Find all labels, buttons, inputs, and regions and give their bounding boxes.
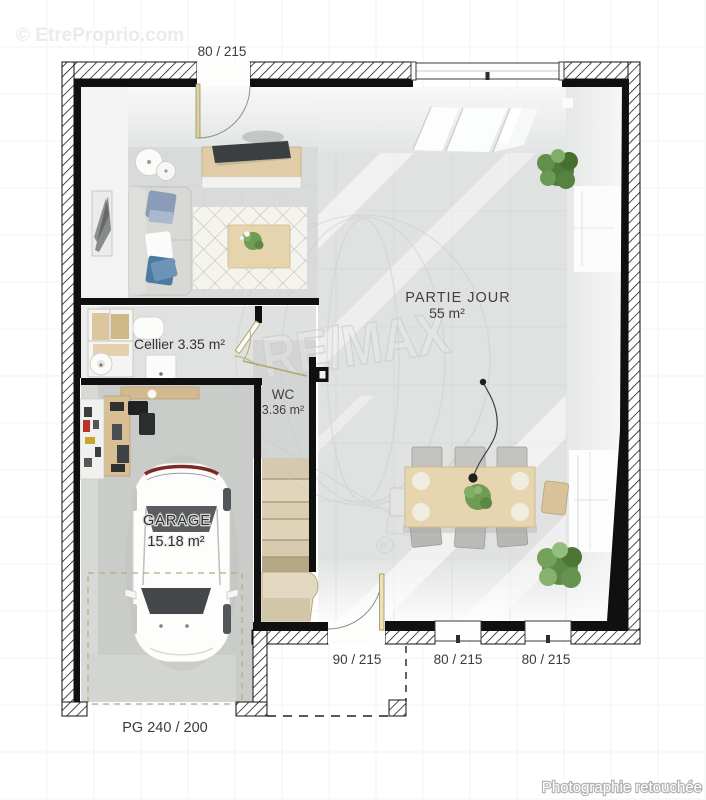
svg-text:80 / 215: 80 / 215 [434,652,483,667]
svg-text:15.18 m²: 15.18 m² [147,534,204,550]
svg-text:R: R [380,540,388,552]
svg-text:80 / 215: 80 / 215 [522,652,571,667]
svg-text:WC: WC [272,387,295,402]
svg-text:Photographie retouchée: Photographie retouchée [542,779,702,796]
svg-text:90 / 215: 90 / 215 [333,652,382,667]
svg-text:80 / 215: 80 / 215 [198,44,247,59]
svg-text:© EtreProprio.com: © EtreProprio.com [16,25,184,46]
svg-text:GARAGE: GARAGE [143,513,211,529]
svg-text:Cellier 3.35 m²: Cellier 3.35 m² [134,336,225,352]
svg-text:3.36 m²: 3.36 m² [262,403,304,417]
svg-text:PG 240 / 200: PG 240 / 200 [122,720,207,736]
svg-text:55 m²: 55 m² [429,305,465,321]
svg-text:PARTIE JOUR: PARTIE JOUR [405,290,511,306]
